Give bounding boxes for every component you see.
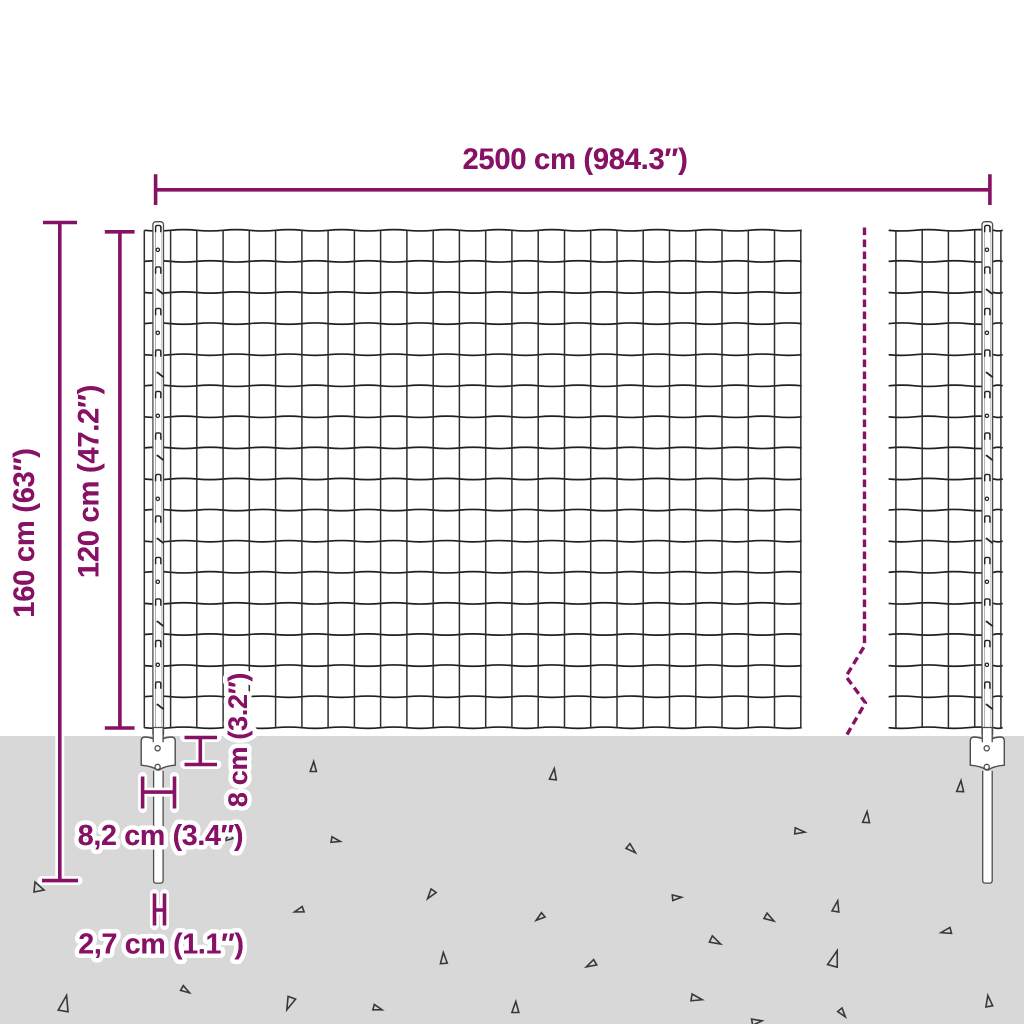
svg-text:120 cm (47.2″): 120 cm (47.2″) bbox=[74, 385, 106, 578]
svg-text:8 cm (3.2″): 8 cm (3.2″) bbox=[223, 673, 253, 807]
svg-text:8,2 cm (3.4″): 8,2 cm (3.4″) bbox=[78, 820, 244, 852]
svg-text:2500 cm (984.3″): 2500 cm (984.3″) bbox=[463, 144, 688, 176]
svg-text:160 cm (63″): 160 cm (63″) bbox=[9, 448, 41, 617]
svg-text:2,7 cm (1.1″): 2,7 cm (1.1″) bbox=[78, 929, 244, 961]
